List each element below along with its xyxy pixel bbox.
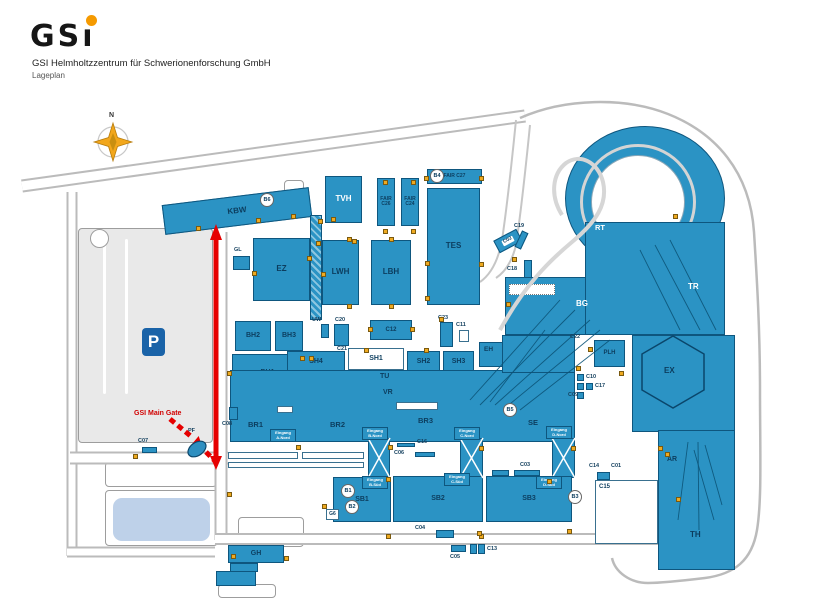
label-c01: C01 xyxy=(611,463,621,469)
label-gl: GL xyxy=(234,247,242,253)
area-label-tu: TU xyxy=(380,373,389,380)
label-c11: C11 xyxy=(456,322,466,328)
building-walkway3 xyxy=(228,462,364,468)
door-marker-icon xyxy=(383,229,388,234)
entrance-a-nord: EingangA-Nord xyxy=(270,429,296,442)
door-marker-icon xyxy=(479,446,484,451)
pond xyxy=(113,498,210,541)
label-c20: C20 xyxy=(335,317,345,323)
label-pf: PF xyxy=(188,428,195,434)
building-vent2 xyxy=(396,402,438,410)
building-bh3-label: BH3 xyxy=(282,332,296,340)
area-label-ex: EX xyxy=(664,366,675,375)
label-c17: C17 xyxy=(595,383,605,389)
parking-sign-letter: P xyxy=(148,332,159,352)
building-lwh: LWH xyxy=(322,240,359,305)
area-label-br2: BR2 xyxy=(330,420,345,429)
door-marker-icon xyxy=(676,497,681,502)
door-marker-icon xyxy=(227,371,232,376)
building-walkway1 xyxy=(228,452,298,459)
door-marker-icon xyxy=(386,534,391,539)
building-ez-label: EZ xyxy=(276,265,286,274)
parking-sign: P xyxy=(142,328,165,356)
ground-block xyxy=(218,584,276,598)
site-map-page: GSı GSI Helmholtzzentrum für Schwerionen… xyxy=(0,0,816,612)
door-marker-icon xyxy=(386,477,391,482)
node-circle-b3: B3 xyxy=(568,490,582,504)
label-c22: C22 xyxy=(570,334,580,340)
area-label-ar: AR xyxy=(667,456,677,463)
door-marker-icon xyxy=(389,304,394,309)
building-sb3-label: SB3 xyxy=(522,495,536,503)
organization-name: GSI Helmholtzzentrum für Schwerionenfors… xyxy=(32,58,271,69)
compass-north-label: N xyxy=(109,112,114,119)
door-marker-icon xyxy=(256,218,261,223)
door-marker-icon xyxy=(673,214,678,219)
door-marker-icon xyxy=(479,262,484,267)
building-c13-sq1 xyxy=(470,544,477,554)
building-rt-tr-block xyxy=(585,222,725,335)
building-c12-label: C12 xyxy=(385,327,396,334)
building-sb2-label: SB2 xyxy=(431,495,445,503)
label-c21: C21 xyxy=(337,346,347,352)
door-marker-icon xyxy=(316,241,321,246)
building-plh-label: PLH xyxy=(604,350,616,357)
building-c23-tower xyxy=(440,322,453,347)
building-gl-bldg xyxy=(233,256,250,270)
entrance-text: B-Nord xyxy=(368,434,382,439)
door-marker-icon xyxy=(321,272,326,277)
area-label-vr: VR xyxy=(383,389,393,396)
building-gh-label: GH xyxy=(251,550,262,558)
door-marker-icon xyxy=(347,237,352,242)
building-c15-bldg: C15 xyxy=(595,480,658,544)
label-c09: C09 xyxy=(568,392,578,398)
building-lbh: LBH xyxy=(371,240,411,305)
building-bh2-label: BH2 xyxy=(246,332,260,340)
building-c20-tower xyxy=(334,324,349,346)
door-marker-icon xyxy=(567,529,572,534)
door-marker-icon xyxy=(389,237,394,242)
gsi-logo: GSı xyxy=(30,22,96,58)
door-marker-icon xyxy=(291,214,296,219)
building-conveyor xyxy=(310,215,322,320)
door-marker-icon xyxy=(547,479,552,484)
parking-lane-line xyxy=(103,239,106,394)
building-lbh-label: LBH xyxy=(383,268,399,277)
building-sh1-label: SH1 xyxy=(369,355,383,363)
door-marker-icon xyxy=(252,271,257,276)
door-marker-icon xyxy=(364,348,369,353)
door-marker-icon xyxy=(347,304,352,309)
door-marker-icon xyxy=(411,229,416,234)
door-marker-icon xyxy=(576,366,581,371)
label-c03: C03 xyxy=(520,462,530,468)
label-uw: UW xyxy=(312,317,321,323)
building-th xyxy=(658,430,735,570)
area-label-se: SE xyxy=(528,418,538,427)
building-c02-label: C02 xyxy=(502,236,514,246)
node-circle-b5: B5 xyxy=(503,403,517,417)
door-marker-icon xyxy=(665,452,670,457)
building-lwh-label: LWH xyxy=(332,268,350,277)
parking-lane-line xyxy=(125,239,128,394)
entrance-text: D-Nord xyxy=(552,433,566,438)
building-c06-bar xyxy=(415,452,435,457)
building-c08-bar xyxy=(229,407,238,420)
building-tvh-label: TVH xyxy=(336,195,352,204)
door-marker-icon xyxy=(309,356,314,361)
label-c14: C14 xyxy=(589,463,599,469)
door-marker-icon xyxy=(439,317,444,322)
entrance-text: C-Süd xyxy=(451,480,463,485)
door-marker-icon xyxy=(425,261,430,266)
label-c06: C06 xyxy=(394,450,404,456)
building-sh3: SH3 xyxy=(443,351,474,372)
entrance-d-nord: EingangD-Nord xyxy=(546,426,572,439)
door-marker-icon xyxy=(331,217,336,222)
building-sh1: SH1 xyxy=(348,348,404,370)
door-marker-icon xyxy=(658,446,663,451)
building-bh3: BH3 xyxy=(275,321,303,351)
logo-orange-dot-icon xyxy=(86,15,97,26)
door-marker-icon xyxy=(133,454,138,459)
area-label-bg: BG xyxy=(576,299,588,308)
building-c16-bar xyxy=(397,443,415,447)
ground-block xyxy=(238,517,304,547)
building-xbrace-c xyxy=(460,438,483,478)
building-walkway2 xyxy=(302,452,364,459)
entrance-text: A-Nord xyxy=(276,436,290,441)
label-c18: C18 xyxy=(507,266,517,272)
door-marker-icon xyxy=(424,176,429,181)
building-ez: EZ xyxy=(253,238,310,301)
building-gh-ext2 xyxy=(216,571,256,586)
label-c05: C05 xyxy=(450,554,460,560)
building-tvh: TVH xyxy=(325,176,362,223)
door-marker-icon xyxy=(383,180,388,185)
building-sh4: SH4 xyxy=(287,351,345,372)
node-circle-b1: B1 xyxy=(341,484,355,498)
building-fair-c24-label: FAIR C24 xyxy=(404,197,415,208)
door-marker-icon xyxy=(571,446,576,451)
area-label-eh: EH xyxy=(484,346,493,353)
label-c10: C10 xyxy=(586,374,596,380)
label-c13: C13 xyxy=(487,546,497,552)
door-marker-icon xyxy=(506,302,511,307)
label-c04: C04 xyxy=(415,525,425,531)
area-label-th: TH xyxy=(690,530,701,539)
building-c05-bar xyxy=(451,545,466,552)
building-vent1 xyxy=(277,406,293,413)
main-gate-label: GSI Main Gate xyxy=(134,410,181,417)
door-marker-icon xyxy=(352,239,357,244)
building-kbw: KBW xyxy=(162,187,313,235)
door-marker-icon xyxy=(619,371,624,376)
cul-de-sac xyxy=(90,229,109,248)
door-marker-icon xyxy=(425,296,430,301)
building-sh2: SH2 xyxy=(407,351,440,372)
building-c14-sq xyxy=(597,472,610,480)
door-marker-icon xyxy=(410,327,415,332)
door-marker-icon xyxy=(307,256,312,261)
map-subtitle: Lageplan xyxy=(32,71,65,80)
entrance-text: B-Süd xyxy=(369,483,381,488)
building-kbw-label: KBW xyxy=(227,205,247,216)
ground-block xyxy=(105,462,217,487)
logo-letters-gs: GS xyxy=(30,19,82,54)
label-c16: C16 xyxy=(417,439,427,445)
label-c08: C08 xyxy=(222,421,232,427)
door-marker-icon xyxy=(300,356,305,361)
building-fair-c24: FAIR C24 xyxy=(401,178,419,226)
building-sh3-label: SH3 xyxy=(452,358,466,366)
building-ex-block xyxy=(632,335,735,432)
door-marker-icon xyxy=(479,176,484,181)
building-fair-c27-label: FAIR C27 xyxy=(444,174,466,180)
door-marker-icon xyxy=(424,348,429,353)
label-c19: C19 xyxy=(514,223,524,229)
entrance-b-nord: EingangB-Nord xyxy=(362,427,388,440)
pond-block xyxy=(105,490,218,546)
door-marker-icon xyxy=(296,445,301,450)
building-plh: PLH xyxy=(594,340,625,367)
building-tes-label: TES xyxy=(446,242,462,251)
entrance-text: C-Nord xyxy=(460,434,474,439)
door-marker-icon xyxy=(322,504,327,509)
building-c10-sq xyxy=(577,374,584,381)
node-circle-b4: B4 xyxy=(430,169,444,183)
building-c04-bldg xyxy=(436,530,454,538)
door-marker-icon xyxy=(318,219,323,224)
building-fair-c26: FAIR C26 xyxy=(377,178,395,226)
door-marker-icon xyxy=(411,180,416,185)
building-fair-c26-label: FAIR C26 xyxy=(380,197,391,208)
door-marker-icon xyxy=(284,556,289,561)
door-marker-icon xyxy=(588,347,593,352)
building-c17-sq1 xyxy=(577,383,584,390)
door-marker-icon xyxy=(388,445,393,450)
area-label-rt: RT xyxy=(595,223,605,232)
area-label-tr: TR xyxy=(688,282,699,291)
door-marker-icon xyxy=(196,226,201,231)
label-c07: C07 xyxy=(138,438,148,444)
entrance-b-süd: EingangB-Süd xyxy=(362,476,388,489)
building-c12: C12 xyxy=(370,320,412,340)
area-label-br3: BR3 xyxy=(418,416,433,425)
door-marker-icon xyxy=(368,327,373,332)
building-c17-sq2 xyxy=(586,383,593,390)
building-g6-box-label: G6 xyxy=(329,512,336,518)
building-bg-hatch xyxy=(509,284,555,295)
building-c03-bar1 xyxy=(492,470,509,476)
entrance-c-süd: EingangC-Süd xyxy=(444,473,470,486)
node-circle-b2: B2 xyxy=(345,500,359,514)
door-marker-icon xyxy=(477,531,482,536)
building-tes: TES xyxy=(427,188,480,305)
door-marker-icon xyxy=(512,257,517,262)
area-label-br1: BR1 xyxy=(248,420,263,429)
building-uw-bldg xyxy=(321,324,329,338)
building-c15-bldg-label: C15 xyxy=(599,484,610,491)
node-circle-b6: B6 xyxy=(260,193,274,207)
building-xbrace-b xyxy=(368,438,390,478)
door-marker-icon xyxy=(231,554,236,559)
building-c13-sq2 xyxy=(478,544,485,554)
door-marker-icon xyxy=(227,492,232,497)
building-transfer-wedge xyxy=(502,335,575,373)
entrance-c-nord: EingangC-Nord xyxy=(454,427,480,440)
building-xbrace-d xyxy=(552,438,575,478)
building-c11-bldg xyxy=(459,330,469,342)
building-gh: GH xyxy=(228,545,284,563)
building-c07-bar xyxy=(142,447,157,453)
building-g6-box: G6 xyxy=(326,509,339,520)
building-bh2: BH2 xyxy=(235,321,271,351)
building-sh2-label: SH2 xyxy=(417,358,431,366)
